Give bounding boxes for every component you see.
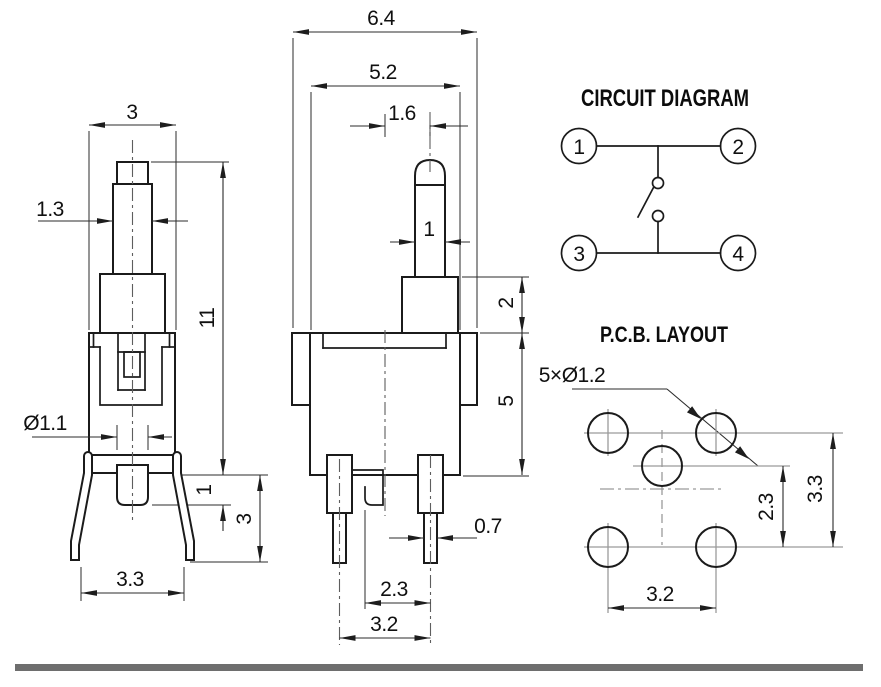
dim-pcb-center-to-row: 2.3 <box>755 466 783 547</box>
dim-front-overall-width: 6.4 <box>293 7 477 32</box>
dim-label: 5.2 <box>369 61 397 84</box>
dim-label: 2.3 <box>380 578 408 601</box>
hole-callout-label: 5×Ø1.2 <box>539 364 605 387</box>
datasheet-drawing-page: 3 1.3 11 Ø1.1 1 3 3.3 <box>0 0 881 687</box>
switch-contact-lower <box>653 211 664 222</box>
terminal-2-label: 2 <box>732 136 743 159</box>
dim-side-leg-height: 3 <box>233 475 260 562</box>
side-right-leg <box>173 452 194 560</box>
dim-front-actuator-offset: 1.6 <box>350 102 468 126</box>
switch-lever <box>638 188 654 218</box>
terminal-4-label: 4 <box>732 243 744 266</box>
dim-front-actuator-width: 1 <box>390 218 470 242</box>
side-left-leg <box>71 452 92 560</box>
dim-side-pin-protrusion: 1 <box>193 484 223 531</box>
dim-front-step-height: 2 <box>495 277 522 333</box>
technical-drawing: 3 1.3 11 Ø1.1 1 3 3.3 <box>0 0 881 687</box>
hole-callout-leader <box>572 389 758 466</box>
dim-label: 2.3 <box>755 493 778 521</box>
dim-pcb-row-spacing: 3.3 <box>804 433 833 547</box>
circuit-diagram-title: CIRCUIT DIAGRAM <box>581 85 749 112</box>
dim-front-terminal-pitch: 3.2 <box>340 613 431 638</box>
dim-label: 1 <box>423 218 434 241</box>
dim-label: Ø1.1 <box>23 412 67 435</box>
dim-label: 3 <box>126 101 137 124</box>
switch-contact-upper <box>653 178 664 189</box>
dim-label: 1.6 <box>388 102 416 125</box>
dim-label: 1 <box>193 484 216 495</box>
dim-label: 1.3 <box>36 198 64 221</box>
dim-front-terminal-offset: 2.3 <box>365 578 431 603</box>
dim-label: 0.7 <box>474 515 502 538</box>
dim-side-top-width: 3 <box>89 101 176 125</box>
dim-front-body-width: 5.2 <box>311 61 460 86</box>
side-inner-frame <box>100 347 162 405</box>
dim-front-terminal-width: 0.7 <box>389 515 502 538</box>
dim-label: 3 <box>233 513 256 524</box>
front-view: 6.4 5.2 1.6 1 2 5 0.7 <box>292 7 529 645</box>
circuit-diagram: CIRCUIT DIAGRAM 1 2 3 4 <box>562 85 756 271</box>
dim-label: 11 <box>196 308 219 329</box>
dim-front-body-height: 5 <box>495 333 522 475</box>
terminal-1-label: 1 <box>573 136 584 159</box>
dim-side-leg-span: 3.3 <box>81 568 184 593</box>
dim-label: 3.3 <box>116 568 144 591</box>
terminal-3-label: 3 <box>573 243 584 266</box>
dim-side-total-height: 11 <box>196 162 223 475</box>
dim-label: 5 <box>495 395 518 406</box>
pcb-layout-title: P.C.B. LAYOUT <box>600 322 728 347</box>
front-step-block <box>402 277 458 333</box>
dim-label: 3.3 <box>804 475 827 503</box>
dim-label: 6.4 <box>367 7 396 30</box>
pcb-layout: P.C.B. LAYOUT 5×Ø1.2 2.3 <box>539 322 843 613</box>
dim-label: 3.2 <box>646 583 674 606</box>
footer-divider-bar <box>15 664 863 671</box>
dim-label: 2 <box>495 297 518 308</box>
dim-pcb-hole-pitch: 3.2 <box>608 583 716 608</box>
dim-side-pin-diameter: Ø1.1 <box>23 412 172 437</box>
dim-label: 3.2 <box>370 613 398 636</box>
side-view: 3 1.3 11 Ø1.1 1 3 3.3 <box>23 101 268 601</box>
